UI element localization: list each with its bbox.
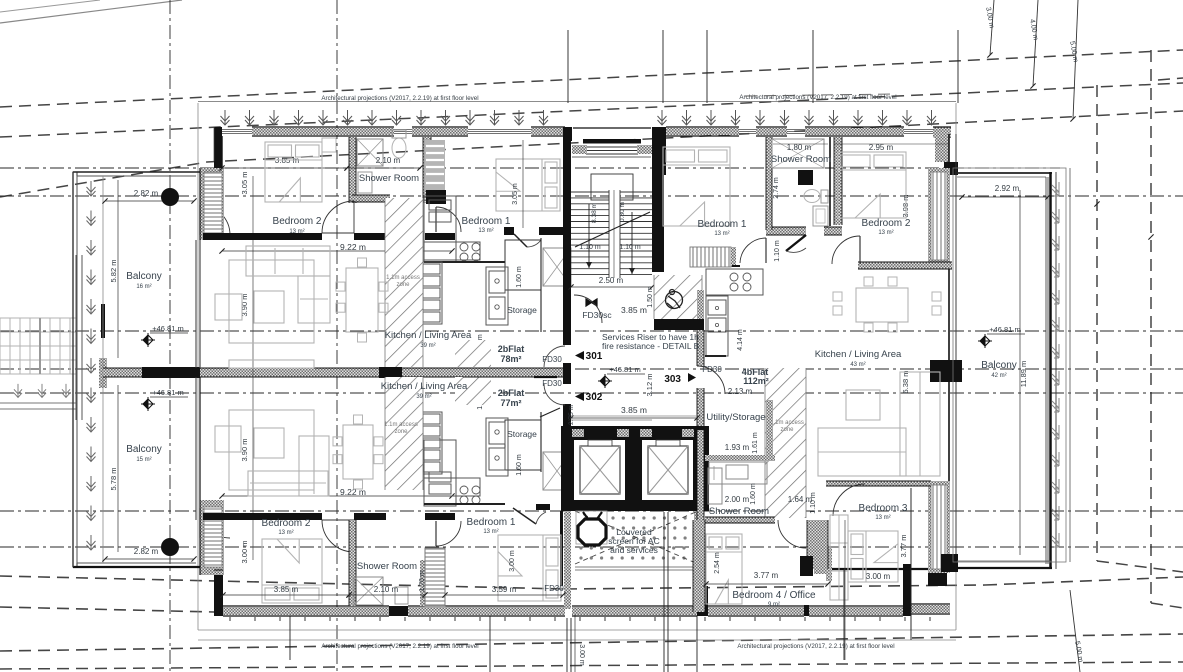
svg-text:1.10 m: 1.10 m [579,244,601,251]
svg-text:Bedroom 3: Bedroom 3 [859,503,908,514]
svg-text:42 m²: 42 m² [991,373,1006,379]
svg-text:77m²: 77m² [500,398,521,408]
svg-text:5.78 m: 5.78 m [109,468,118,491]
svg-text:3.77 m: 3.77 m [754,571,779,580]
svg-text:3.00 m: 3.00 m [866,572,891,581]
svg-text:Utility/Storage: Utility/Storage [706,412,765,423]
svg-text:3.12 m: 3.12 m [645,374,654,397]
svg-text:+46.81 m: +46.81 m [989,325,1020,334]
svg-text:3.85 m: 3.85 m [274,585,299,594]
svg-text:zone: zone [396,282,410,288]
svg-text:Kitchen / Living Area: Kitchen / Living Area [815,349,902,360]
svg-text:Shower Room: Shower Room [359,173,419,184]
svg-text:1.1m access: 1.1m access [770,420,804,426]
svg-text:2.10 m: 2.10 m [374,585,399,594]
svg-text:13 m²: 13 m² [478,228,493,234]
svg-text:Bedroom 2: Bedroom 2 [273,216,322,227]
svg-text:2.82 m: 2.82 m [134,189,159,198]
svg-text:2bFlat: 2bFlat [498,388,525,398]
svg-text:3.00 m: 3.00 m [509,550,516,572]
svg-text:Storage: Storage [507,429,537,439]
svg-text:2.95 m: 2.95 m [869,143,894,152]
svg-text:Storage: Storage [507,305,537,315]
svg-text:2.13 m: 2.13 m [728,387,753,396]
svg-text:13 m²: 13 m² [278,530,293,536]
svg-text:Balcony: Balcony [126,271,162,282]
svg-text:FD30: FD30 [542,355,562,364]
svg-text:3.85 m: 3.85 m [621,405,647,415]
svg-text:+46.81 m: +46.81 m [609,365,640,374]
svg-text:FD30: FD30 [544,584,564,593]
svg-text:1.10 m: 1.10 m [810,492,817,514]
svg-text:Bedroom 4 / Office: Bedroom 4 / Office [732,590,816,601]
svg-text:Bedroom 1: Bedroom 1 [462,216,511,227]
svg-text:2.82 m: 2.82 m [134,547,159,556]
svg-text:FD30sc: FD30sc [582,310,612,320]
svg-text:3.00 m: 3.00 m [578,644,585,666]
svg-text:1.1m access: 1.1m access [386,275,420,281]
svg-text:9 m²: 9 m² [768,602,780,608]
svg-text:13 m²: 13 m² [483,529,498,535]
svg-text:Shower Room: Shower Room [771,154,831,165]
svg-text:2.75 m: 2.75 m [568,405,575,425]
svg-text:and services: and services [610,545,658,555]
svg-text:6.38 m: 6.38 m [901,371,910,394]
svg-text:3.90 m: 3.90 m [240,294,249,317]
svg-text:Kitchen / Living Area: Kitchen / Living Area [385,330,472,341]
svg-text:2bFlat: 2bFlat [498,344,525,354]
svg-text:303: 303 [664,374,681,385]
svg-text:15 m²: 15 m² [136,457,151,463]
svg-text:43 m²: 43 m² [850,362,865,368]
svg-text:3.77 m: 3.77 m [899,535,908,558]
svg-text:1.60 m: 1.60 m [750,483,757,505]
svg-text:78m²: 78m² [500,354,521,364]
svg-text:13 m²: 13 m² [875,515,890,521]
svg-text:8.38 m: 8.38 m [591,203,598,223]
svg-text:Bedroom 2: Bedroom 2 [862,218,911,229]
svg-text:3.59 m: 3.59 m [492,585,517,594]
svg-text:1.70 m: 1.70 m [419,570,426,592]
svg-text:5.82 m: 5.82 m [109,260,118,283]
svg-text:1.10 m: 1.10 m [774,240,781,262]
svg-text:Architectural projections (V20: Architectural projections (V2017, 2.2.19… [321,643,478,650]
svg-text:13 m²: 13 m² [878,230,893,236]
svg-text:13 m²: 13 m² [714,231,729,237]
svg-text:39 m²: 39 m² [416,394,431,400]
svg-text:1.60 m: 1.60 m [516,454,523,476]
svg-text:3.85 m: 3.85 m [621,305,647,315]
svg-text:1.93 m: 1.93 m [725,443,750,452]
svg-text:1.64 m: 1.64 m [788,495,813,504]
svg-text:Bedroom 2: Bedroom 2 [262,518,311,529]
svg-text:2.50 m: 2.50 m [599,276,624,285]
svg-text:2.74 m: 2.74 m [773,177,780,199]
svg-text:1.1m access: 1.1m access [384,422,418,428]
svg-text:Kitchen / Living Area: Kitchen / Living Area [381,381,468,392]
svg-text:3.05 m: 3.05 m [240,172,249,195]
svg-text:1.60 m: 1.60 m [516,266,523,288]
svg-text:4.14 m: 4.14 m [737,329,744,351]
svg-text:0.80 m: 0.80 m [619,202,626,222]
svg-text:+46.81 m: +46.81 m [152,388,183,397]
svg-text:1.80 m: 1.80 m [787,143,812,152]
svg-text:9.22 m: 9.22 m [340,242,366,252]
svg-text:302: 302 [586,392,603,403]
svg-text:+46.81 m: +46.81 m [152,324,183,333]
svg-text:Architectural projections (V20: Architectural projections (V2017, 2.2.19… [737,643,894,650]
svg-text:zone: zone [394,429,408,435]
svg-text:FD30: FD30 [542,379,562,388]
svg-text:Architectural projections (V20: Architectural projections (V2017, 2.2.19… [739,94,896,101]
svg-text:3.00 m: 3.00 m [240,541,249,564]
svg-text:Shower Room: Shower Room [357,561,417,572]
svg-text:2.92 m: 2.92 m [995,184,1020,193]
svg-text:Balcony: Balcony [981,360,1017,371]
svg-text:16 m²: 16 m² [136,284,151,290]
svg-text:112m²: 112m² [743,376,769,386]
svg-text:3.05 m: 3.05 m [512,183,519,205]
svg-text:FD30: FD30 [702,365,722,374]
svg-text:1.50 m: 1.50 m [647,286,654,308]
svg-text:2.54 m: 2.54 m [714,552,721,574]
svg-text:Balcony: Balcony [126,444,162,455]
svg-text:Architectural projections (V20: Architectural projections (V2017, 2.2.19… [321,95,478,102]
svg-text:301: 301 [586,351,603,362]
svg-text:Bedroom 1: Bedroom 1 [698,219,747,230]
svg-text:Shower Room: Shower Room [709,506,769,517]
svg-text:13 m²: 13 m² [289,229,304,235]
svg-text:2.00 m: 2.00 m [725,495,750,504]
svg-text:1.10 m: 1.10 m [619,244,641,251]
svg-text:zone: zone [780,427,794,433]
svg-text:39 m²: 39 m² [420,343,435,349]
svg-text:fire resistance - DETAIL B: fire resistance - DETAIL B [602,341,700,351]
svg-text:2.10 m: 2.10 m [376,156,401,165]
svg-text:Bedroom 1: Bedroom 1 [467,517,516,528]
svg-text:1.61 m: 1.61 m [752,432,759,454]
